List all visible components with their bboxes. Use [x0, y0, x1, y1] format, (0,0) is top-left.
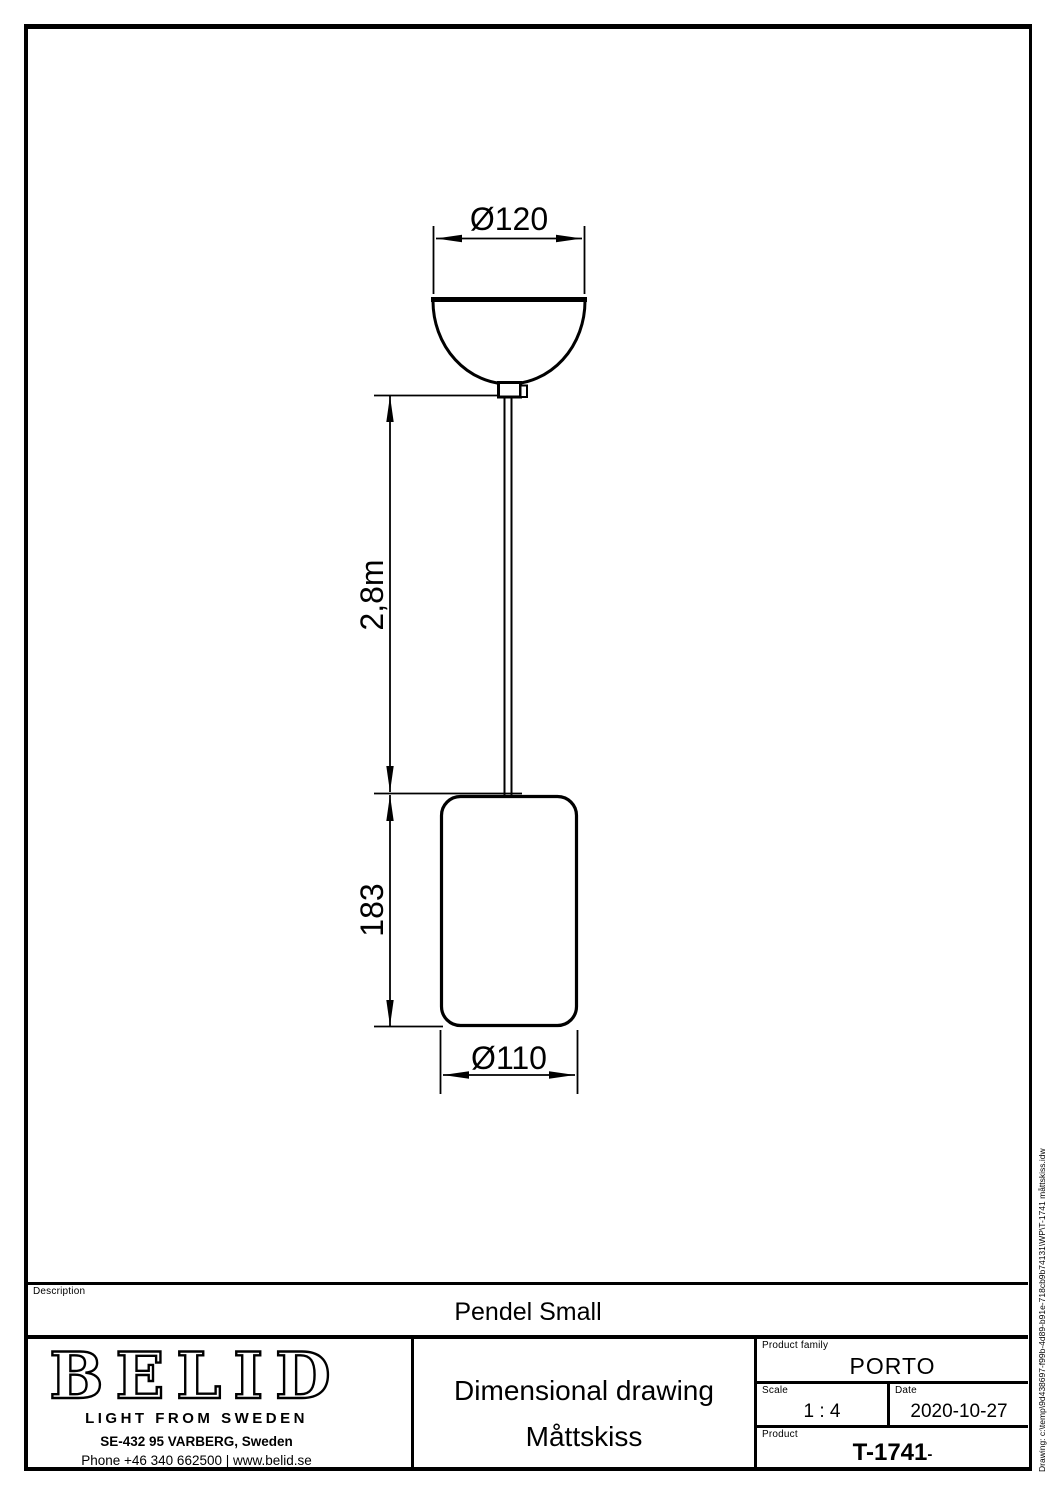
title-block-main-row: BELID LIGHT FROM SWEDEN SE-432 95 VARBER… — [28, 1335, 1028, 1467]
date-label: Date — [895, 1385, 917, 1396]
file-path-note: Drawing: c:\temp\9d438697-f99b-4d89-b91e… — [1037, 1148, 1047, 1472]
brand-contact: Phone +46 340 662500 | www.belid.se — [28, 1453, 365, 1468]
product-family-cell: Product family PORTO — [757, 1339, 1028, 1381]
brand-tagline: LIGHT FROM SWEDEN — [28, 1410, 365, 1427]
description-label: Description — [33, 1286, 85, 1297]
scale-label: Scale — [762, 1385, 788, 1396]
belid-logo-text: BELID — [49, 1342, 342, 1410]
description-value: Pendel Small — [28, 1285, 1028, 1335]
scale-cell: Scale 1 : 4 — [757, 1384, 890, 1425]
product-number: T-1741 — [853, 1439, 928, 1467]
scale-date-row: Scale 1 : 4 Date 2020-10-27 — [757, 1381, 1028, 1425]
date-cell: Date 2020-10-27 — [890, 1384, 1028, 1425]
brand-cell: BELID LIGHT FROM SWEDEN SE-432 95 VARBER… — [28, 1339, 411, 1467]
brand-block: BELID LIGHT FROM SWEDEN SE-432 95 VARBER… — [28, 1342, 365, 1468]
brand-address: SE-432 95 VARBERG, Sweden — [28, 1434, 365, 1449]
title-block: Description Pendel Small BELID LIGHT FRO… — [28, 1282, 1028, 1467]
product-family-label: Product family — [762, 1340, 828, 1351]
doc-type-sv: Måttskiss — [526, 1423, 643, 1451]
document-type-cell: Dimensional drawing Måttskiss — [411, 1339, 757, 1467]
product-label: Product — [762, 1429, 798, 1440]
product-number-suffix: - — [927, 1446, 932, 1463]
product-cell: Product T-1741- — [757, 1425, 1028, 1467]
drawing-sheet: Ø120 2,8m 183 Ø110 Description Pendel Sm… — [0, 0, 1058, 1497]
belid-logo: BELID — [28, 1342, 365, 1410]
description-row: Description Pendel Small — [28, 1282, 1028, 1335]
doc-type-en: Dimensional drawing — [454, 1377, 714, 1405]
sheet-border — [24, 24, 1032, 1471]
info-panel: Product family PORTO Scale 1 : 4 Date 20… — [757, 1339, 1028, 1467]
